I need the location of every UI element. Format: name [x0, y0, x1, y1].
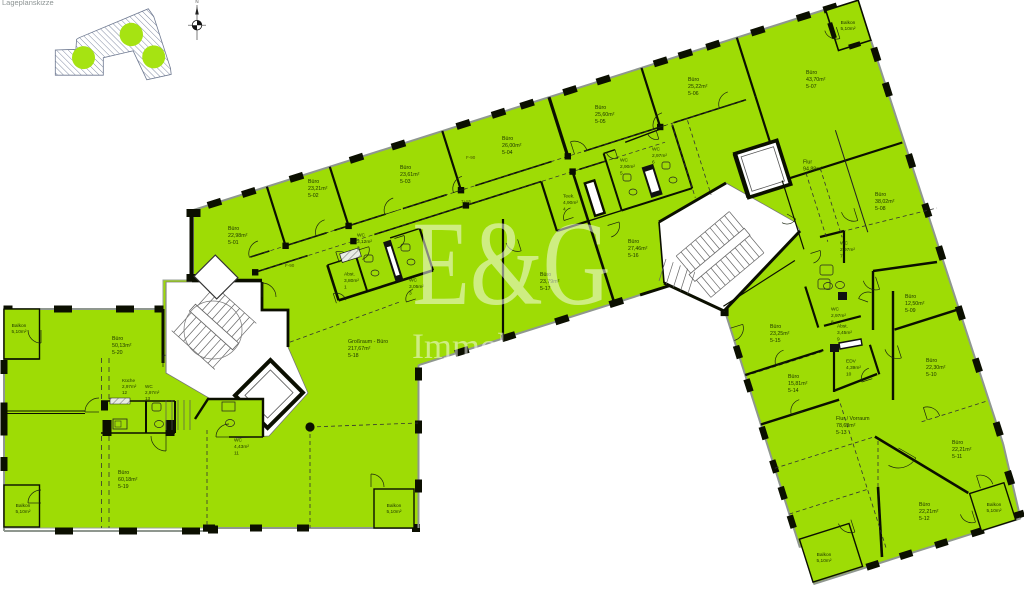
svg-text:F-90: F-90	[466, 155, 476, 160]
svg-text:Lageplanskizze: Lageplanskizze	[2, 0, 54, 7]
svg-text:E&G: E&G	[413, 198, 611, 331]
svg-text:Immobilien: Immobilien	[412, 326, 580, 366]
svg-text:F-90: F-90	[285, 263, 295, 268]
svg-text:N: N	[195, 0, 198, 4]
